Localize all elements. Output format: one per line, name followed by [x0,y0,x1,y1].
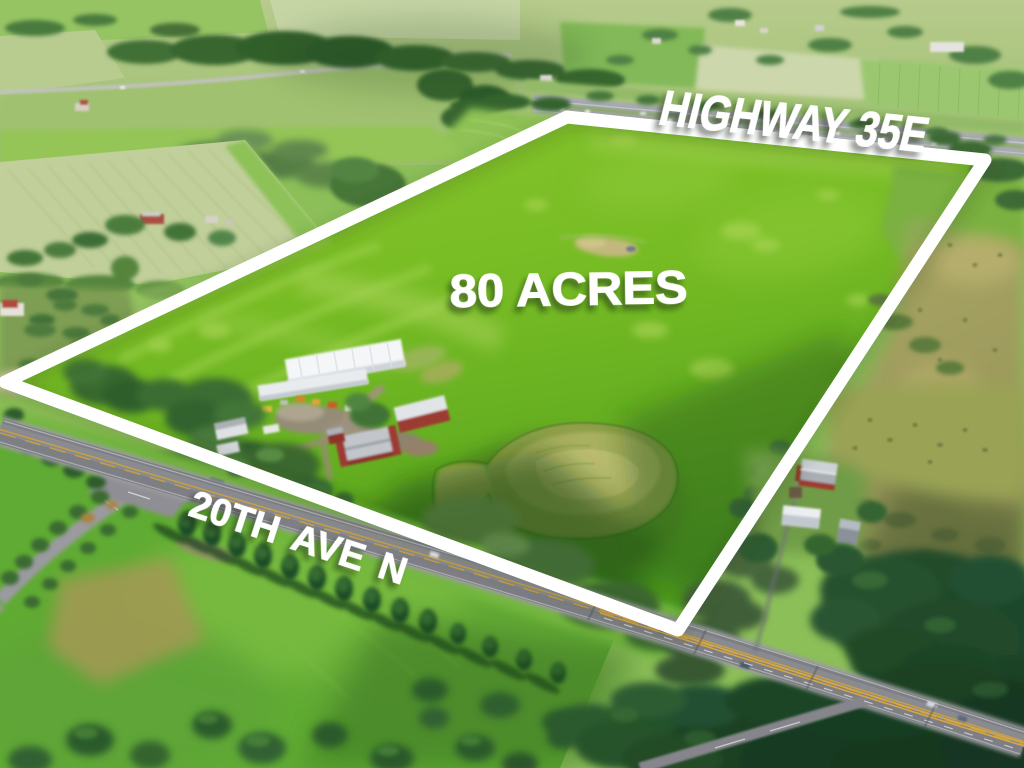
svg-text:80 ACRES: 80 ACRES [449,261,688,317]
